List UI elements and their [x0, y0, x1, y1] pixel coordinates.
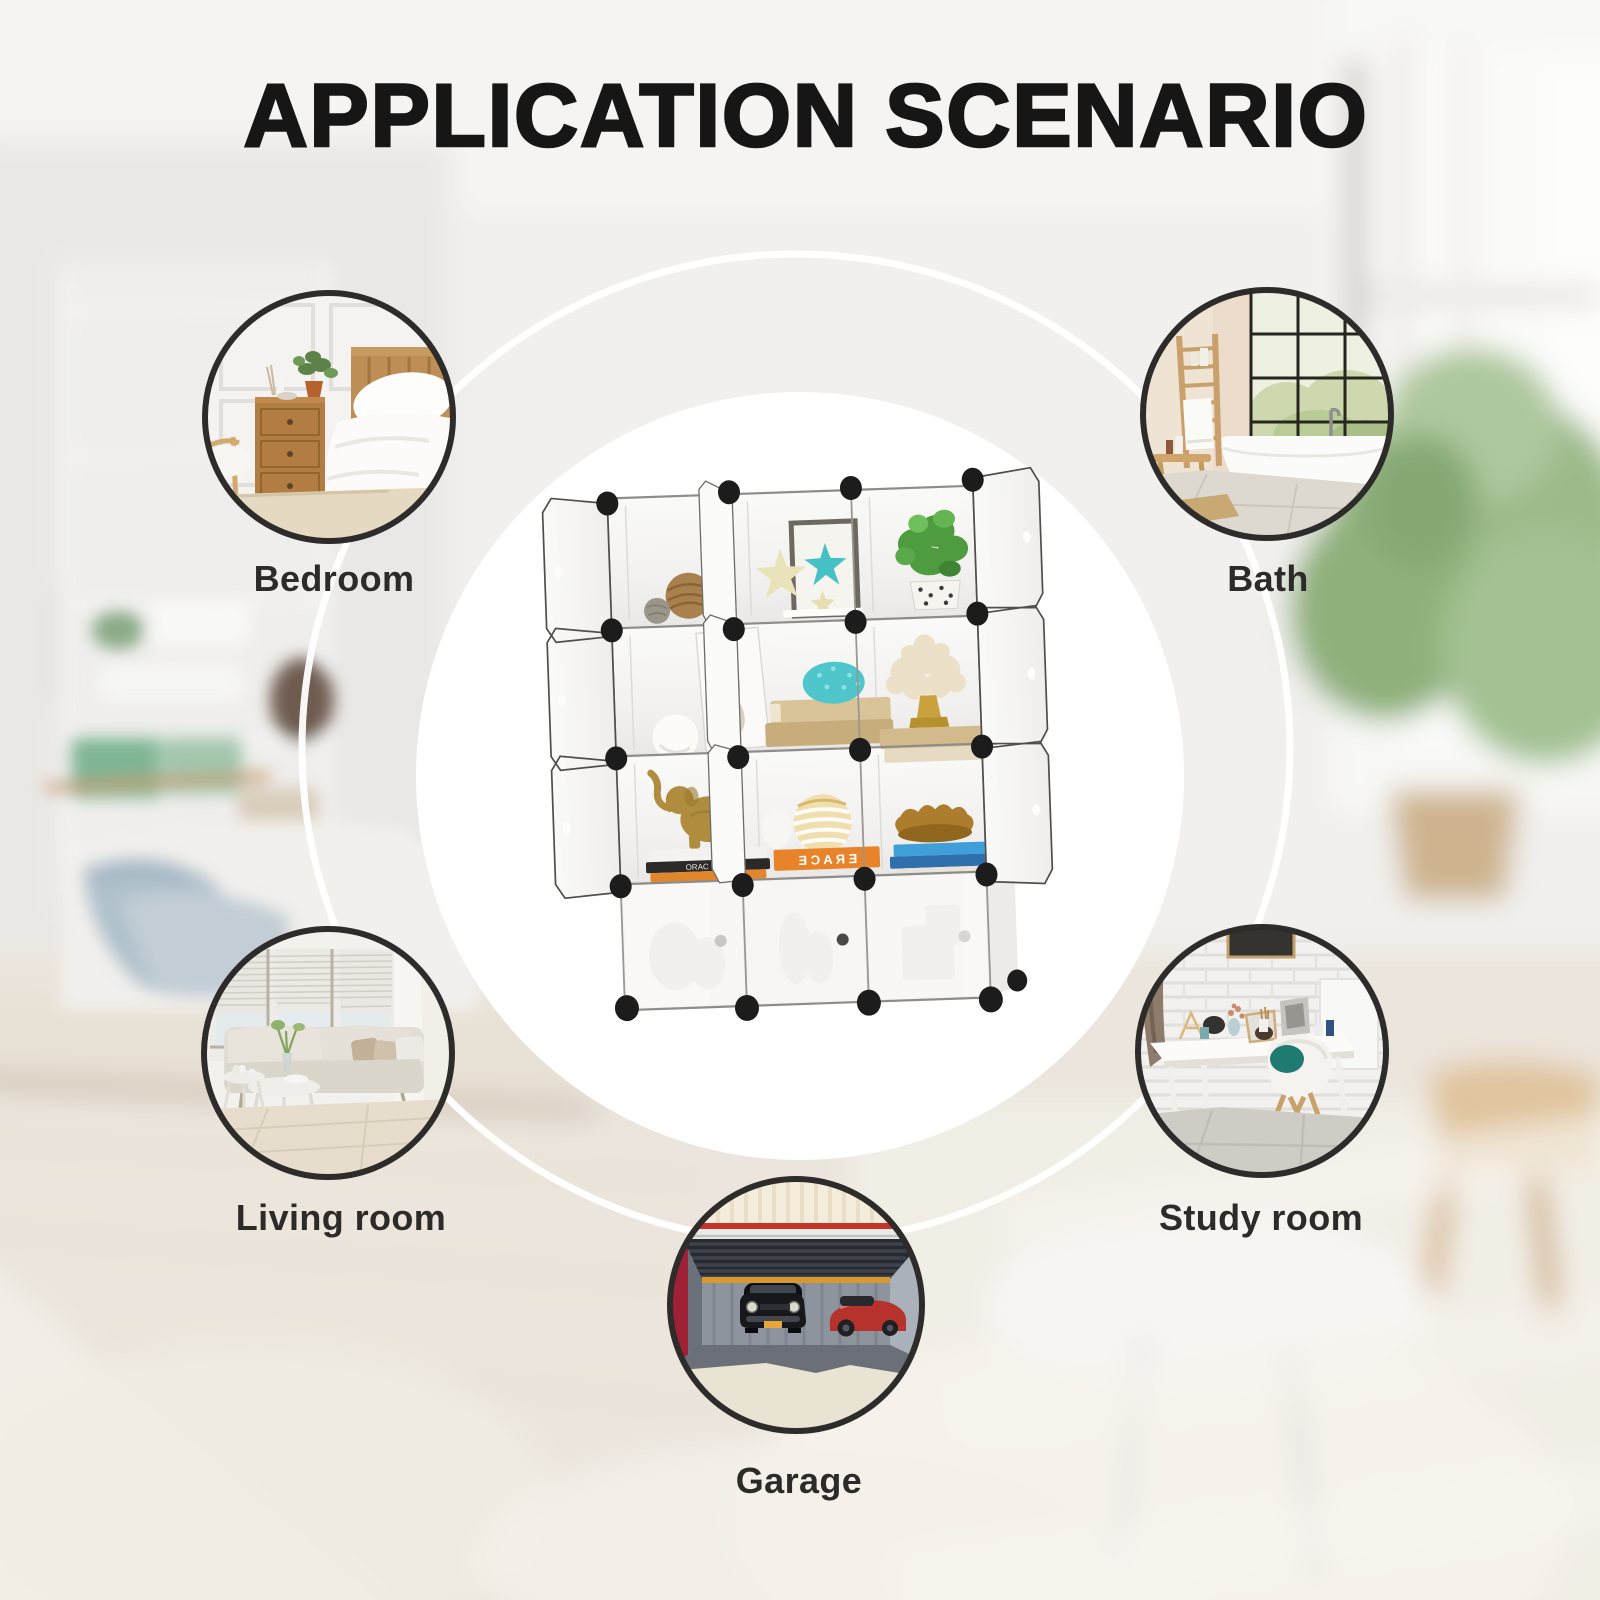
- svg-text:Living room: Living room: [236, 1197, 446, 1238]
- svg-text:Bedroom: Bedroom: [254, 558, 415, 599]
- svg-text:Garage: Garage: [736, 1460, 862, 1501]
- svg-text:APPLICATION SCENARIO: APPLICATION SCENARIO: [243, 65, 1368, 165]
- svg-text:Ǝ Ɔ A Я Ǝ: Ǝ Ɔ A Я Ǝ: [798, 851, 857, 868]
- svg-text:Study room: Study room: [1159, 1197, 1363, 1238]
- svg-text:Bath: Bath: [1227, 558, 1309, 599]
